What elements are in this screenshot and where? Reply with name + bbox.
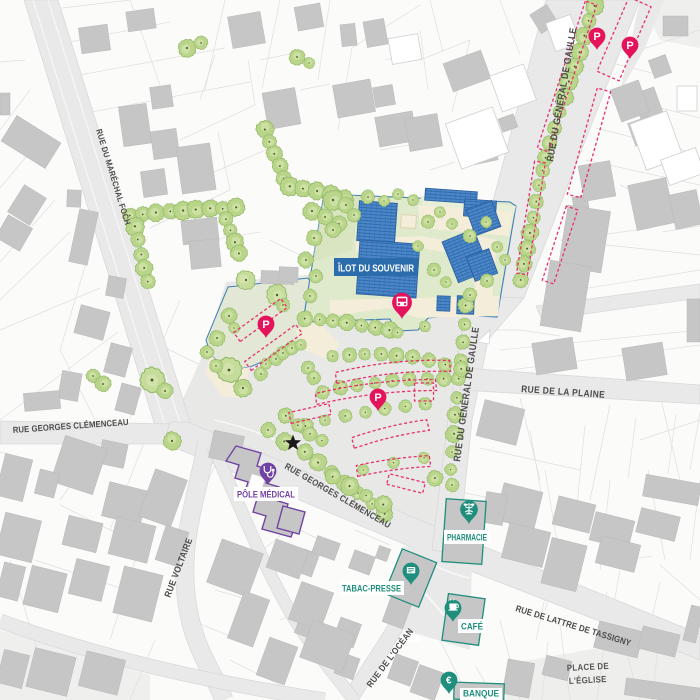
svg-text:P: P bbox=[626, 40, 633, 52]
svg-text:PÔLE MÉDICAL: PÔLE MÉDICAL bbox=[237, 489, 295, 501]
svg-text:TABAC-PRESSE: TABAC-PRESSE bbox=[342, 584, 401, 595]
svg-text:P: P bbox=[593, 31, 600, 43]
svg-text:PLACE DE: PLACE DE bbox=[567, 660, 610, 673]
svg-text:BANQUE: BANQUE bbox=[463, 689, 499, 700]
svg-text:L'ÉGLISE: L'ÉGLISE bbox=[569, 674, 607, 687]
svg-text:P: P bbox=[262, 319, 269, 331]
svg-text:ÎLOT DU SOUVENIR: ÎLOT DU SOUVENIR bbox=[337, 262, 414, 275]
svg-text:€: € bbox=[446, 675, 452, 686]
svg-text:CAFÉ: CAFÉ bbox=[461, 622, 483, 633]
svg-text:P: P bbox=[374, 392, 381, 404]
svg-text:PHARMACIE: PHARMACIE bbox=[447, 533, 487, 544]
